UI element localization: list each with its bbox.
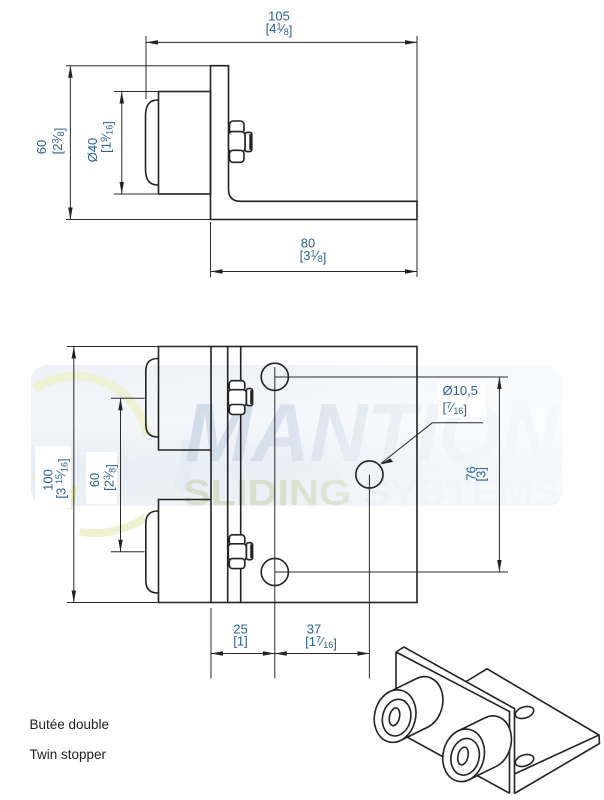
svg-text:Butée double: Butée double bbox=[30, 717, 110, 732]
svg-text:60: 60 bbox=[34, 140, 49, 154]
svg-text:[3]: [3] bbox=[474, 467, 489, 481]
svg-text:Ø10,5: Ø10,5 bbox=[443, 383, 478, 398]
svg-text:Twin stopper: Twin stopper bbox=[30, 747, 107, 762]
svg-text:[1]: [1] bbox=[233, 634, 247, 649]
svg-text:60: 60 bbox=[87, 473, 102, 487]
